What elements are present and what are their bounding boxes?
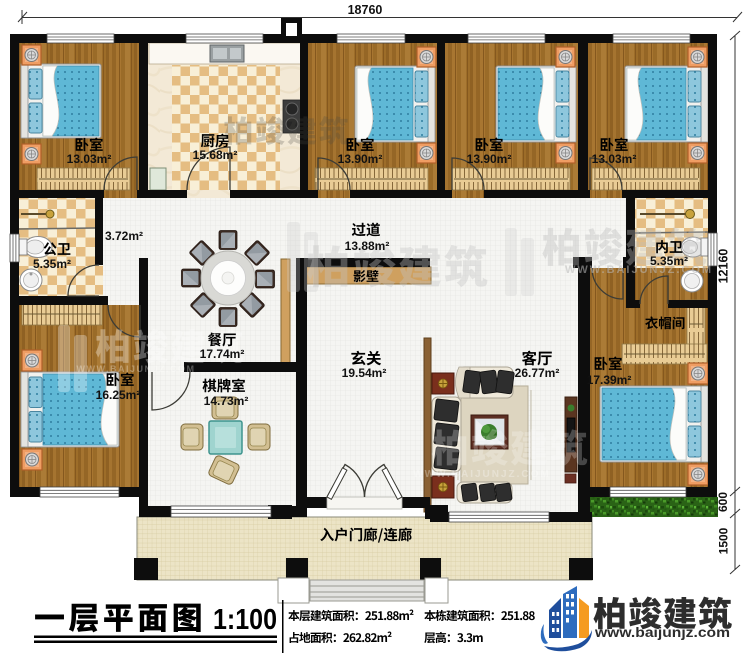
svg-text:13.90m²: 13.90m² xyxy=(338,152,383,166)
svg-text:15.68m²: 15.68m² xyxy=(193,148,238,162)
svg-text:12160: 12160 xyxy=(717,249,731,284)
svg-text:WWW.BAIJUNJZ.COM: WWW.BAIJUNJZ.COM xyxy=(565,264,713,276)
svg-text:13.88m²: 13.88m² xyxy=(345,239,390,253)
svg-text:19.54m²: 19.54m² xyxy=(342,366,387,380)
svg-text:WWW.BAIJUNJZ.COM: WWW.BAIJUNJZ.COM xyxy=(413,469,551,480)
svg-text:14.73m²: 14.73m² xyxy=(204,394,249,408)
svg-text:17.74m²: 17.74m² xyxy=(200,347,245,361)
svg-text:www.baijunjz.com: www.baijunjz.com xyxy=(594,625,730,640)
svg-text:26.77m²: 26.77m² xyxy=(515,366,560,380)
svg-text:WWW.BAIJUNJZ.COM: WWW.BAIJUNJZ.COM xyxy=(77,364,196,374)
svg-text:3.72m²: 3.72m² xyxy=(105,229,143,243)
svg-text:13.03m²: 13.03m² xyxy=(67,152,112,166)
svg-text:1:100: 1:100 xyxy=(213,604,277,636)
svg-text:18760: 18760 xyxy=(348,3,383,17)
svg-text:16.25m²: 16.25m² xyxy=(96,388,141,402)
svg-text:5.35m²: 5.35m² xyxy=(33,257,71,271)
svg-text:1500: 1500 xyxy=(717,527,731,554)
svg-text:17.39m²: 17.39m² xyxy=(587,373,632,387)
svg-text:600: 600 xyxy=(716,492,730,512)
svg-text:13.03m²: 13.03m² xyxy=(592,152,637,166)
svg-text:5.35m²: 5.35m² xyxy=(650,254,688,268)
svg-text:13.90m²: 13.90m² xyxy=(467,152,512,166)
